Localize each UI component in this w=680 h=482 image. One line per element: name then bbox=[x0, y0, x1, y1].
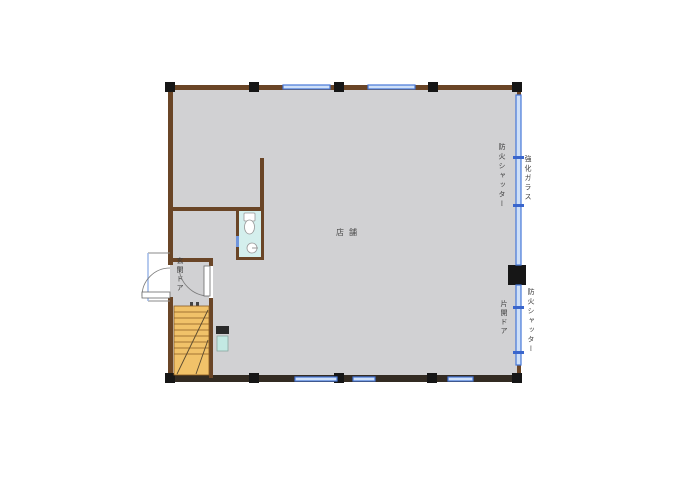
toilet-bottom-wall bbox=[236, 257, 264, 260]
toilet-right-wall bbox=[261, 207, 264, 260]
column bbox=[427, 373, 437, 383]
column bbox=[512, 82, 522, 92]
column bbox=[428, 82, 438, 92]
window-mullion-tick bbox=[513, 306, 524, 309]
stair-head-mark bbox=[190, 302, 193, 306]
partition-horizontal-wall bbox=[170, 207, 264, 211]
window-mullion-tick bbox=[513, 204, 524, 207]
fire-shutter-upper-label: 防火シャッター bbox=[498, 143, 505, 210]
room-label: 店舗 bbox=[336, 227, 362, 238]
entrance-door-label: 玄関ドア bbox=[176, 257, 183, 293]
bottom-window-left bbox=[295, 377, 337, 381]
utility-box-icon bbox=[216, 326, 229, 334]
tempered-glass-label: 強化ガラス bbox=[524, 155, 531, 203]
stair-head-mark bbox=[196, 302, 199, 306]
fire-shutter-lower-label: 防火シャッター bbox=[527, 288, 534, 355]
toilet-door-mark bbox=[236, 236, 239, 247]
bottom-window-middle bbox=[353, 377, 375, 381]
column bbox=[249, 373, 259, 383]
top-window-right bbox=[368, 85, 415, 89]
floorplan-canvas: 店舗 玄関ドア 防火シャッター 強化ガラス 片開ドア 防火シャッター bbox=[0, 0, 680, 482]
column bbox=[334, 82, 344, 92]
column bbox=[165, 373, 175, 383]
top-window-left bbox=[283, 85, 330, 89]
left-wall-lower bbox=[168, 297, 173, 382]
stair-flight bbox=[174, 306, 209, 375]
left-wall-upper bbox=[168, 85, 173, 265]
utility-sink-icon bbox=[217, 336, 228, 351]
column bbox=[512, 373, 522, 383]
right-window-upper bbox=[516, 95, 521, 265]
toilet-bowl-icon bbox=[245, 220, 255, 234]
top-wall bbox=[168, 85, 522, 90]
right-wall-pillar-block bbox=[508, 265, 526, 285]
column bbox=[165, 82, 175, 92]
floorplan-drawing bbox=[0, 0, 680, 482]
bottom-window-right bbox=[448, 377, 473, 381]
column bbox=[249, 82, 259, 92]
window-mullion-tick bbox=[513, 351, 524, 354]
toilet-room bbox=[236, 207, 264, 260]
outer-door-leaf bbox=[142, 292, 170, 298]
staircase bbox=[174, 306, 209, 375]
toilet-left-wall bbox=[236, 207, 239, 260]
window-mullion-tick bbox=[513, 156, 524, 159]
utility-fixture bbox=[216, 326, 229, 351]
partition-stub-wall bbox=[260, 158, 264, 210]
inner-door-leaf bbox=[204, 266, 210, 296]
single-swing-door-label: 片開ドア bbox=[500, 300, 507, 336]
